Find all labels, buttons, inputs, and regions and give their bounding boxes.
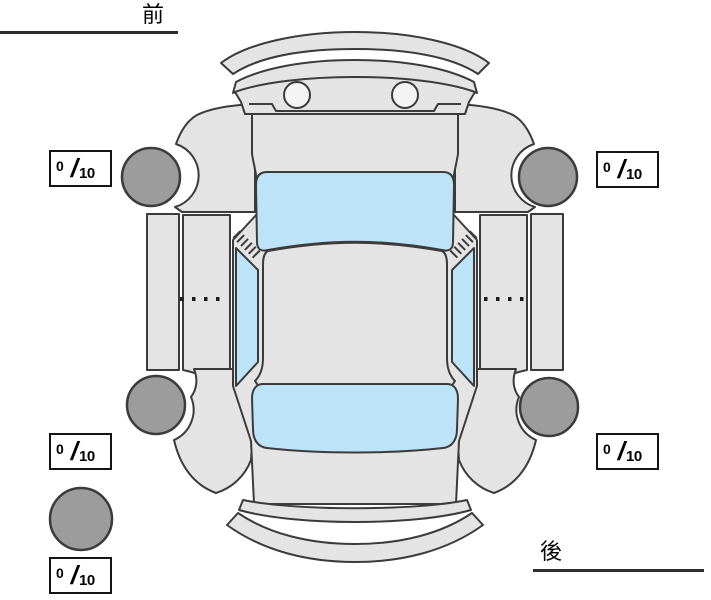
score-max: 10 <box>79 448 95 465</box>
front-detail-circle-left <box>284 82 310 108</box>
score-value: 0 <box>603 159 611 175</box>
score-max: 10 <box>626 166 642 183</box>
score-max: 10 <box>79 572 95 589</box>
front-detail-circle-right <box>392 82 418 108</box>
score-max: 10 <box>626 448 642 465</box>
score-rear-right: 0/10 <box>596 433 659 470</box>
side-window-right <box>452 248 474 386</box>
tire-front-right <box>519 148 577 206</box>
score-rear-left: 0/10 <box>49 433 112 470</box>
score-max: 10 <box>79 165 95 182</box>
rear-direction-label: 後 <box>533 539 704 572</box>
score-separator: / <box>71 564 78 587</box>
rear-window <box>252 384 458 453</box>
side-window-left <box>236 248 258 386</box>
roof-panel <box>255 243 455 387</box>
fender-front-left <box>175 104 255 212</box>
side-sill-right <box>531 214 563 370</box>
score-separator: / <box>618 440 625 463</box>
side-sill-left <box>147 214 179 370</box>
score-separator: / <box>618 158 625 181</box>
score-value: 0 <box>56 441 64 457</box>
score-separator: / <box>71 440 78 463</box>
score-front-right: 0/10 <box>596 151 659 188</box>
front-direction-label: 前 <box>0 2 178 34</box>
spare-tire <box>50 488 112 550</box>
fender-front-right <box>455 104 535 212</box>
front-label-text: 前 <box>142 2 164 27</box>
tire-rear-right <box>520 378 578 436</box>
score-spare: 0/10 <box>49 557 112 594</box>
score-separator: / <box>71 157 78 180</box>
rear-label-text: 後 <box>540 539 562 564</box>
score-value: 0 <box>56 565 64 581</box>
tire-rear-left <box>127 376 185 434</box>
score-value: 0 <box>56 158 64 174</box>
score-front-left: 0/10 <box>49 150 112 187</box>
front-panel <box>235 77 475 114</box>
tire-front-left <box>122 148 180 206</box>
windshield <box>256 172 454 251</box>
car-top-view-svg <box>0 0 711 600</box>
tire-condition-diagram: 前 後 0/10 0/10 0/10 0/10 0/10 <box>0 0 711 600</box>
score-value: 0 <box>603 441 611 457</box>
